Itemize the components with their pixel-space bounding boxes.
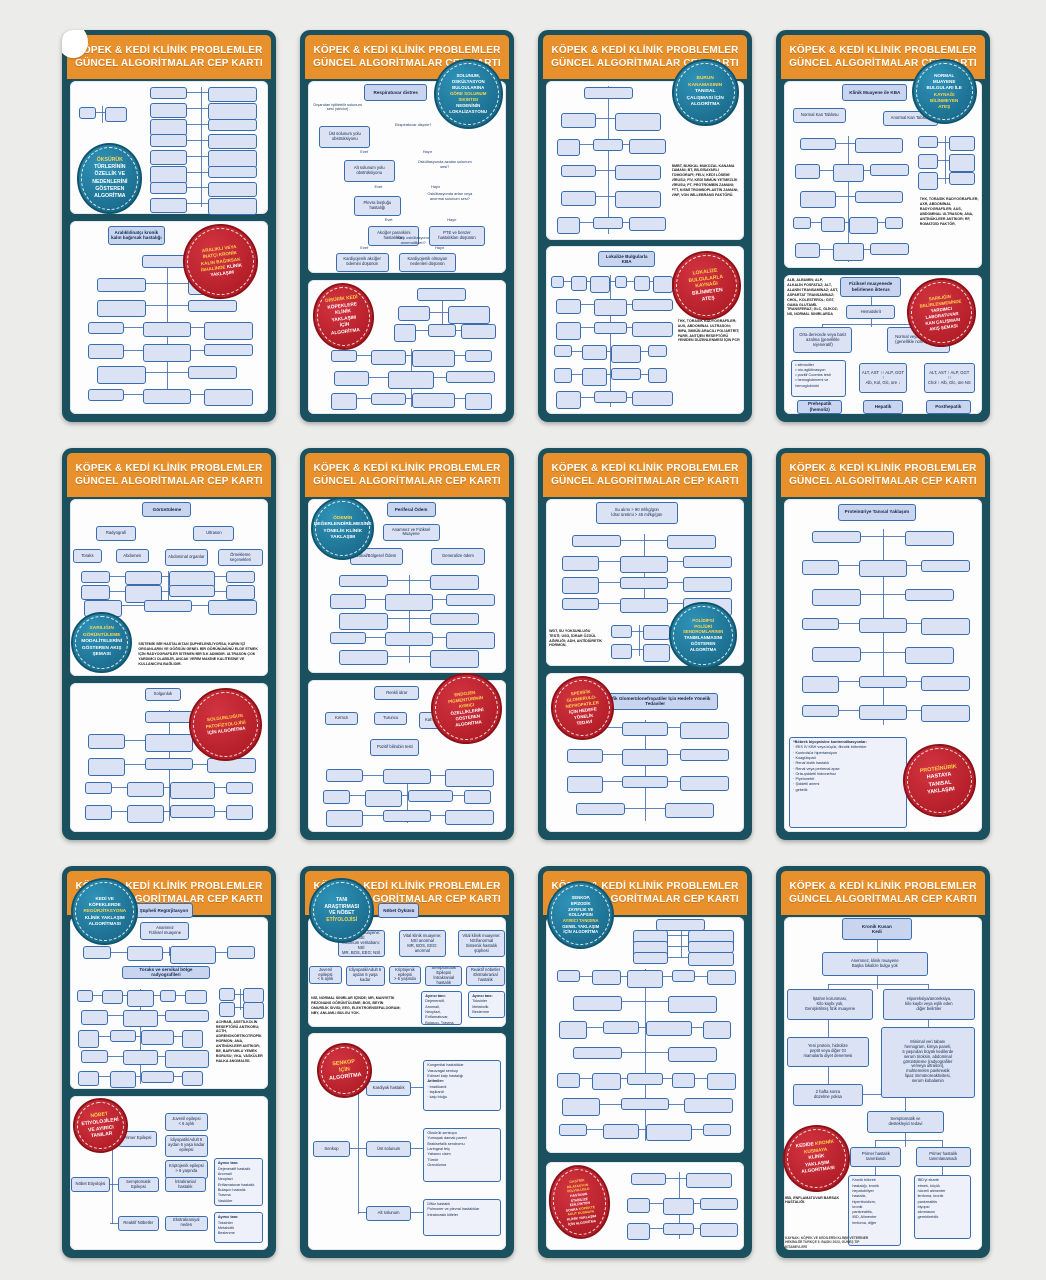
decor-box bbox=[632, 322, 672, 337]
card-proteinuri: KÖPEK & KEDİ KLİNİK PROBLEMLER GÜNCEL AL… bbox=[776, 448, 990, 840]
decor-box bbox=[921, 676, 970, 691]
abbrev-note: IBD, ENFLAMATUVAR BARSAK HASTALIĞI. bbox=[785, 1196, 844, 1210]
decor-box bbox=[859, 705, 907, 720]
card-header: KÖPEK & KEDİ KLİNİK PROBLEMLER GÜNCEL AL… bbox=[305, 453, 509, 497]
decor-box bbox=[123, 1010, 159, 1028]
decor-box bbox=[921, 560, 970, 572]
abbrev-note: BMBT, BUKKAL MUKOZAL KANAMA ZAMANI; BT, … bbox=[672, 164, 741, 238]
card-odem-degerlendirme: KÖPEK & KEDİ KLİNİK PROBLEMLER GÜNCEL AL… bbox=[300, 448, 514, 840]
decor-box bbox=[150, 182, 188, 194]
decor-box bbox=[144, 600, 193, 612]
flow-box: Alt solunum bbox=[366, 1206, 411, 1221]
connector-line bbox=[610, 275, 611, 407]
flow-box: Renkli idrar bbox=[374, 686, 419, 700]
connector-line bbox=[828, 1067, 829, 1084]
connector-line bbox=[102, 106, 103, 123]
decor-box bbox=[576, 803, 625, 815]
card-title-line1: KÖPEK & KEDİ KLİNİK PROBLEMLER bbox=[75, 463, 262, 475]
decor-box bbox=[859, 676, 907, 688]
decor-box bbox=[821, 217, 845, 232]
flow-box: AnamnezFiziksel muayene bbox=[140, 922, 189, 941]
decor-box bbox=[339, 575, 388, 587]
decor-box bbox=[672, 1073, 695, 1088]
flow-box: Şüpheli Regürjitasyon bbox=[134, 903, 193, 918]
card-nobet-senkop: KÖPEK & KEDİ KLİNİK PROBLEMLER GÜNCEL AL… bbox=[300, 866, 514, 1258]
diff-list: IBD'yi ekarteetmek, küçükhücreli aliment… bbox=[914, 1175, 971, 1239]
connector-line bbox=[877, 940, 878, 952]
flow-box: Nöbet Etiyolojisi bbox=[71, 1177, 110, 1192]
decor-box bbox=[949, 136, 975, 151]
decor-box bbox=[707, 1073, 737, 1091]
decor-box bbox=[918, 154, 938, 169]
decor-box bbox=[88, 389, 124, 401]
diff-list: Difüz hastalıkPulmoner ve plevral hastal… bbox=[423, 1199, 501, 1236]
connector-line bbox=[95, 576, 240, 577]
flow-box: Örnekleme seçenekleri bbox=[218, 549, 263, 566]
decor-box bbox=[615, 276, 627, 288]
decor-box bbox=[110, 1071, 137, 1089]
edge-label: Evet bbox=[356, 150, 372, 160]
decor-box bbox=[448, 306, 490, 324]
decor-box bbox=[680, 776, 729, 791]
connector-line bbox=[877, 976, 878, 990]
connector-line bbox=[942, 1140, 943, 1147]
flow-box: Toraks ve servikal bölge radyografileri bbox=[122, 966, 210, 980]
flow-box: Reaktif Nöbetler bbox=[118, 1216, 159, 1231]
decor-box bbox=[795, 243, 819, 258]
decor-box bbox=[949, 172, 975, 184]
decor-box bbox=[88, 758, 125, 776]
decor-box bbox=[611, 644, 631, 659]
decor-box bbox=[81, 1010, 108, 1025]
flow-box: Turuncu bbox=[374, 712, 407, 726]
decor-box bbox=[551, 276, 563, 288]
decor-box bbox=[905, 531, 954, 546]
decor-box bbox=[567, 749, 602, 764]
flow-box: Vital klinik muayene: NSİ anormalMR, BOS… bbox=[399, 930, 446, 957]
decor-box bbox=[643, 625, 670, 640]
decor-box bbox=[562, 577, 599, 595]
decor-box bbox=[446, 594, 495, 606]
decor-box bbox=[885, 217, 903, 229]
decor-box bbox=[412, 393, 455, 408]
connector-line bbox=[871, 297, 872, 305]
decor-box bbox=[78, 1071, 98, 1086]
edge-label: Evet bbox=[370, 185, 386, 195]
decor-box bbox=[582, 345, 606, 360]
flow-box: Radyografi bbox=[96, 526, 137, 541]
teal-badge: ÖKSÜRÜK TÜRLERİNİN ÖZELLİK VE NEDENLERİN… bbox=[77, 143, 142, 214]
decor-box bbox=[77, 990, 93, 1002]
connector-line bbox=[645, 969, 646, 1141]
edge-label: Oskültasyonda artan veya anormal solunum… bbox=[421, 192, 478, 214]
card-canvas: ÖKSÜRÜK TÜRLERİNİN ÖZELLİK VE NEDENLERİN… bbox=[67, 79, 271, 417]
decor-box bbox=[665, 803, 714, 818]
decor-box bbox=[464, 790, 492, 805]
decor-box bbox=[105, 107, 127, 122]
decor-box bbox=[110, 1030, 137, 1042]
flow-box: Abdomen bbox=[116, 549, 149, 563]
flow-box: Prehepatik (hemoliz) bbox=[797, 400, 842, 414]
flow-box: Toraks bbox=[73, 549, 102, 563]
decor-box bbox=[593, 217, 623, 229]
decor-box bbox=[680, 749, 729, 761]
connector-line bbox=[99, 787, 240, 788]
connector-line bbox=[828, 1020, 829, 1037]
abbrev-note: WDT, SU YOKSUNLUĞU TESTİ; USG, İDRAR ÖZG… bbox=[549, 629, 602, 663]
flow-box: Lokalize Bulgularla KBA bbox=[598, 251, 655, 266]
decor-box bbox=[219, 1002, 235, 1017]
decor-box bbox=[905, 647, 954, 665]
decor-box bbox=[561, 113, 596, 128]
decor-box bbox=[833, 164, 864, 182]
decor-box bbox=[81, 571, 110, 583]
decor-box bbox=[78, 1030, 98, 1048]
decor-box bbox=[559, 1124, 587, 1136]
decor-box bbox=[326, 769, 363, 781]
decor-box bbox=[326, 810, 363, 828]
decor-box bbox=[150, 198, 188, 213]
diff-list: Öksürük senkopuYumuşak damak pareziBraki… bbox=[423, 1128, 501, 1182]
decor-box bbox=[208, 198, 257, 216]
card-title-line2: GÜNCEL ALGORİTMALAR CEP KARTI bbox=[789, 894, 977, 906]
decor-box bbox=[150, 103, 188, 118]
connector-line bbox=[905, 1098, 906, 1112]
decor-box bbox=[330, 632, 366, 644]
card-title-line1: KÖPEK & KEDİ KLİNİK PROBLEMLER bbox=[789, 45, 976, 57]
connector-line bbox=[97, 952, 241, 953]
connector-line bbox=[573, 1027, 717, 1028]
flow-box: Respiratuvar distres bbox=[364, 84, 427, 101]
decor-box bbox=[633, 952, 669, 964]
card-title-line2: GÜNCEL ALGORİTMALAR CEP KARTI bbox=[75, 476, 263, 488]
decor-box bbox=[557, 217, 580, 235]
card-canvas: SOLUNUM, OSKÜLTASYON BULGULARINA GÖRE SO… bbox=[305, 79, 509, 417]
decor-box bbox=[371, 350, 406, 365]
edge-label: Dışarıdan işitilebilir solunum sesi (str… bbox=[313, 103, 362, 120]
decor-box bbox=[707, 970, 737, 985]
card-canvas: BURUN KANAMASININ TANISAL ÇALIŞMASI İÇİN… bbox=[543, 79, 747, 417]
decor-box bbox=[592, 1073, 622, 1091]
decor-box bbox=[686, 1173, 732, 1188]
decor-box bbox=[188, 300, 237, 312]
card-title-line1: KÖPEK & KEDİ KLİNİK PROBLEMLER bbox=[551, 463, 738, 475]
connector-line bbox=[337, 795, 478, 796]
decor-box bbox=[88, 344, 124, 359]
decor-box bbox=[145, 711, 194, 723]
decor-box bbox=[208, 103, 257, 121]
flow-box: Anemnez, klinik muayeneBaşka lokalize bu… bbox=[822, 952, 928, 976]
decor-box bbox=[561, 191, 596, 206]
decor-box bbox=[559, 1021, 587, 1039]
decor-box bbox=[182, 1071, 202, 1086]
connector-line bbox=[411, 1148, 423, 1149]
decor-box bbox=[833, 243, 864, 261]
decor-box bbox=[921, 705, 970, 723]
decor-box bbox=[622, 749, 668, 767]
flow-box: Semptomatik Epilepsi bbox=[118, 1177, 159, 1192]
decor-box bbox=[365, 790, 401, 808]
decor-box bbox=[620, 577, 669, 589]
decor-box bbox=[150, 134, 188, 146]
flow-box: Orta derecede veya bariz azalma (genelli… bbox=[793, 327, 852, 352]
connector-line bbox=[350, 1148, 366, 1149]
decor-box bbox=[634, 276, 650, 291]
flow-box: Plevra boşluğu hastalığı bbox=[354, 196, 401, 216]
decor-box bbox=[622, 776, 668, 788]
decor-box bbox=[554, 368, 573, 383]
decor-box bbox=[226, 585, 255, 600]
decor-box bbox=[593, 139, 623, 151]
decor-box bbox=[141, 1071, 174, 1083]
decor-box bbox=[802, 618, 839, 630]
decor-box bbox=[592, 970, 622, 985]
card-burun-kanamasi: KÖPEK & KEDİ KLİNİK PROBLEMLER GÜNCEL AL… bbox=[538, 30, 752, 422]
decor-box bbox=[371, 393, 406, 405]
diff-list: Ayırıcı tanı:Dejeneratif, Anomali,Neopla… bbox=[421, 991, 462, 1025]
decor-box bbox=[684, 1098, 733, 1113]
card-header: KÖPEK & KEDİ KLİNİK PROBLEMLER GÜNCEL AL… bbox=[543, 453, 747, 497]
decor-box bbox=[800, 138, 836, 150]
decor-box bbox=[85, 782, 113, 794]
decor-box bbox=[627, 970, 663, 988]
decor-box bbox=[561, 165, 596, 177]
decor-box bbox=[143, 344, 190, 362]
connector-line bbox=[358, 1087, 359, 1214]
decor-box bbox=[554, 345, 573, 357]
decor-box bbox=[573, 996, 622, 1011]
decor-box bbox=[165, 1010, 209, 1022]
decor-box bbox=[226, 782, 254, 794]
decor-box bbox=[185, 990, 206, 1005]
connector-line bbox=[201, 87, 202, 207]
abbrev-note: ACHRAB, ASETİLKOLİN RESEPTÖRÜ ANTİKORU; … bbox=[216, 1020, 267, 1081]
card-title-line2: GÜNCEL ALGORİTMALAR CEP KARTI bbox=[789, 476, 977, 488]
decor-box bbox=[603, 1021, 640, 1033]
decor-box bbox=[170, 782, 215, 800]
connector-line bbox=[95, 591, 240, 592]
flow-box: Hepatik bbox=[863, 400, 904, 414]
decor-box bbox=[571, 276, 587, 291]
decor-box bbox=[446, 371, 495, 383]
decor-box bbox=[465, 393, 491, 411]
connector-line bbox=[112, 1138, 113, 1224]
decor-box bbox=[141, 1030, 174, 1045]
teal-badge: BURUN KANAMASININ TANISAL ÇALIŞMASI İÇİN… bbox=[672, 59, 739, 126]
flow-box: İntrakranial hastalık bbox=[165, 1177, 206, 1192]
decor-box bbox=[208, 166, 257, 178]
card-header: KÖPEK & KEDİ KLİNİK PROBLEMLER GÜNCEL AL… bbox=[781, 871, 985, 915]
decor-box bbox=[584, 87, 633, 99]
decor-box bbox=[680, 722, 729, 740]
decor-box bbox=[672, 970, 695, 982]
diff-list: Kongenital hastalıklarVasovagal senkopEd… bbox=[423, 1060, 501, 1111]
decor-box bbox=[622, 722, 668, 737]
connector-line bbox=[608, 86, 609, 235]
flow-box: Senkop bbox=[313, 1141, 350, 1156]
decor-box bbox=[627, 1198, 651, 1213]
flow-box: Su alımı > 90 ml/kg/günİdrar üretimi > 4… bbox=[596, 502, 678, 524]
decor-box bbox=[611, 345, 641, 363]
card-canvas: Proteinüriye Tanısal Yaklaşım*Böbrek biy… bbox=[781, 497, 985, 835]
card-canvas: Kronik KusanKediAnemnez, klinik muayeneB… bbox=[781, 915, 985, 1253]
card-title-line1: KÖPEK & KEDİ KLİNİK PROBLEMLER bbox=[313, 463, 500, 475]
decor-box bbox=[615, 165, 661, 180]
abbrev-note: SİSTEMİK BİR HASTALIKTAN ŞÜPHELENİLİYORS… bbox=[138, 642, 262, 672]
decor-box bbox=[385, 632, 432, 647]
flow-box: Semptomatik Epilepsi İntrakranial hastal… bbox=[425, 966, 462, 986]
flow-box: Hiporeksiya/anoreksiya,kilo kaybı veya e… bbox=[883, 989, 975, 1019]
connector-line bbox=[928, 1020, 929, 1027]
decor-box bbox=[849, 217, 878, 235]
decor-box bbox=[430, 650, 479, 668]
decor-box bbox=[445, 810, 494, 825]
connector-line bbox=[828, 984, 928, 985]
decor-box bbox=[408, 790, 453, 802]
flow-box: Üst solunum bbox=[366, 1141, 411, 1156]
connector-line bbox=[411, 1212, 423, 1213]
decor-box bbox=[204, 389, 253, 407]
flow-box: Yeni protein, hidrolizepeptit veya diğer… bbox=[787, 1037, 869, 1067]
decor-box bbox=[557, 1073, 580, 1088]
card-canvas: NORMAL MUAYENE BULGULARI İLE KAYNAĞI BİL… bbox=[781, 79, 985, 417]
decor-box bbox=[859, 618, 907, 633]
decor-box bbox=[800, 191, 836, 209]
decor-box bbox=[394, 324, 416, 342]
card-title-line1: KÖPEK & KEDİ KLİNİK PROBLEMLER bbox=[313, 45, 500, 57]
decor-box bbox=[688, 952, 734, 967]
decor-box bbox=[445, 769, 494, 787]
decor-box bbox=[802, 676, 839, 694]
decor-box bbox=[855, 138, 902, 153]
decor-box bbox=[428, 324, 456, 336]
decor-box bbox=[188, 366, 237, 378]
decor-box bbox=[430, 575, 479, 590]
decor-box bbox=[621, 1098, 670, 1110]
flow-box: Fiziksel muayenede belirlenen ikterus bbox=[840, 277, 901, 297]
decor-box bbox=[243, 1002, 263, 1020]
decor-box bbox=[388, 371, 434, 389]
flow-box: Semptomatik vedestekleyici tedavi bbox=[867, 1111, 945, 1133]
decor-box bbox=[383, 769, 431, 784]
decor-box bbox=[208, 87, 257, 102]
decor-box bbox=[615, 113, 661, 131]
decor-box bbox=[204, 322, 253, 340]
connector-line bbox=[875, 1167, 876, 1175]
card-senkop-kollaps: KÖPEK & KEDİ KLİNİK PROBLEMLER GÜNCEL AL… bbox=[538, 866, 752, 1258]
decor-box bbox=[573, 1047, 622, 1059]
decor-box bbox=[398, 306, 431, 321]
connector-line bbox=[573, 1129, 717, 1130]
decor-box bbox=[143, 389, 190, 404]
flow-box: Solgunluk bbox=[145, 688, 182, 702]
decor-box bbox=[227, 946, 255, 958]
card-header: KÖPEK & KEDİ KLİNİK PROBLEMLER GÜNCEL AL… bbox=[67, 35, 271, 79]
decor-box bbox=[226, 805, 254, 820]
decor-box bbox=[330, 594, 366, 609]
diff-list: • sferositler• oto-aglütinasyon• pozitif… bbox=[791, 360, 846, 397]
card-canvas: GörüntülemeRadyografiUltrasonToraksAbdom… bbox=[67, 497, 271, 835]
decor-box bbox=[385, 594, 432, 612]
decor-box bbox=[802, 705, 839, 717]
decor-box bbox=[79, 107, 96, 119]
decor-box bbox=[629, 217, 667, 232]
decor-box bbox=[703, 1124, 731, 1136]
decor-box bbox=[170, 946, 216, 964]
decor-box bbox=[169, 585, 215, 597]
decor-box bbox=[85, 805, 113, 820]
decor-box bbox=[594, 391, 626, 403]
flow-box: Abdominal organlar bbox=[165, 549, 208, 566]
connector-line bbox=[942, 1167, 943, 1175]
card-title-line1: KÖPEK & KEDİ KLİNİK PROBLEMLER bbox=[551, 45, 738, 57]
flow-box: Klinik Muayene ile KBA bbox=[842, 84, 907, 101]
abbrev-note: NSİ, NORMAL SINIRLAR İÇİNDE; MR, MANYETİ… bbox=[311, 996, 401, 1026]
decor-box bbox=[334, 371, 369, 386]
decor-box bbox=[631, 1173, 667, 1185]
flow-box: Kardiyak hastalık bbox=[366, 1081, 411, 1096]
flow-box: ALT, AST ↑ ALP, GGT ↑↑Chol ↑ Alb, Glc, ü… bbox=[924, 363, 975, 393]
connector-line bbox=[875, 1140, 876, 1147]
decor-box bbox=[127, 946, 164, 961]
flow-box: İdiyopatik/Adult 6 aydan 6 yaşa kadar ep… bbox=[165, 1135, 208, 1157]
decor-box bbox=[417, 288, 466, 300]
decor-box bbox=[802, 560, 839, 575]
decor-box bbox=[165, 1050, 209, 1068]
decor-box bbox=[331, 393, 357, 411]
decor-box bbox=[700, 1223, 738, 1238]
teal-badge: SARILIĞIN GÖRÜNTÜLEME MODALİTELERİNİ GÖS… bbox=[71, 612, 132, 673]
decor-box bbox=[667, 535, 716, 550]
decor-box bbox=[219, 988, 235, 1000]
decor-box bbox=[590, 276, 610, 294]
decor-box bbox=[127, 782, 163, 797]
decor-box bbox=[627, 1223, 651, 1241]
decor-box bbox=[145, 734, 193, 752]
abbrev-note: THX, TORASİK RADYOGRAFİLER; AUS, ABDOMİN… bbox=[678, 319, 741, 383]
decor-box bbox=[646, 1124, 692, 1142]
decor-box bbox=[562, 1098, 600, 1116]
card-header: KÖPEK & KEDİ KLİNİK PROBLEMLER GÜNCEL AL… bbox=[67, 453, 271, 497]
flow-box: Primer hastalıktanımlandı bbox=[850, 1147, 901, 1167]
diff-list: *Böbrek biyopsisine kontrendikasyonlar:·… bbox=[789, 737, 907, 828]
flow-box: Kardiyojenik olmayan nedenleri düşünün bbox=[399, 253, 456, 272]
flow-box: Pozitif bilirubin testi bbox=[370, 739, 419, 756]
flow-box: Juvenil epilepsi< 6 aylık bbox=[309, 966, 342, 985]
decor-box bbox=[331, 350, 357, 362]
edge-label: Ekspiratuvar dispne? bbox=[391, 123, 436, 135]
decor-box bbox=[582, 368, 606, 386]
teal-badge: TANI ARAŞTIRMASI VE NÖBET ETİYOLOJİSİ bbox=[309, 878, 374, 943]
decor-box bbox=[556, 299, 581, 314]
flow-box: Reaktif nöbetler Ekstrakranial hastalık bbox=[466, 966, 505, 986]
card-regurjitasyon: KÖPEK & KEDİ KLİNİK PROBLEMLER GÜNCEL AL… bbox=[62, 866, 276, 1258]
edge-label: Oskültasyonda azalan solunum sesi? bbox=[417, 160, 472, 179]
card-polidipsi-poliuri: KÖPEK & KEDİ KLİNİK PROBLEMLER GÜNCEL AL… bbox=[538, 448, 752, 840]
decor-box bbox=[208, 182, 257, 197]
diff-list: Ayırıcı tanı:ToksinlerMetabolikBeslenme bbox=[468, 991, 505, 1018]
flow-box: Ultrason bbox=[193, 526, 234, 541]
decor-box bbox=[562, 556, 599, 571]
connector-line bbox=[344, 398, 479, 399]
card-canvas: KEDİ VE KÖPEKLERDE REGÜRJİTASYONA KLİNİK… bbox=[67, 915, 271, 1253]
flow-box: İştahın korunması,Kilo kaybı yok,Genişle… bbox=[787, 989, 873, 1019]
card-canvas: SENKOP, EPİZODİK ZAYIFLIK VE KOLLAPSIN A… bbox=[543, 915, 747, 1253]
decor-box bbox=[683, 577, 732, 592]
decor-box bbox=[648, 368, 667, 383]
flow-box: Kronik KusanKedi bbox=[842, 918, 911, 940]
card-title-line1: KÖPEK & KEDİ KLİNİK PROBLEMLER bbox=[75, 45, 262, 57]
